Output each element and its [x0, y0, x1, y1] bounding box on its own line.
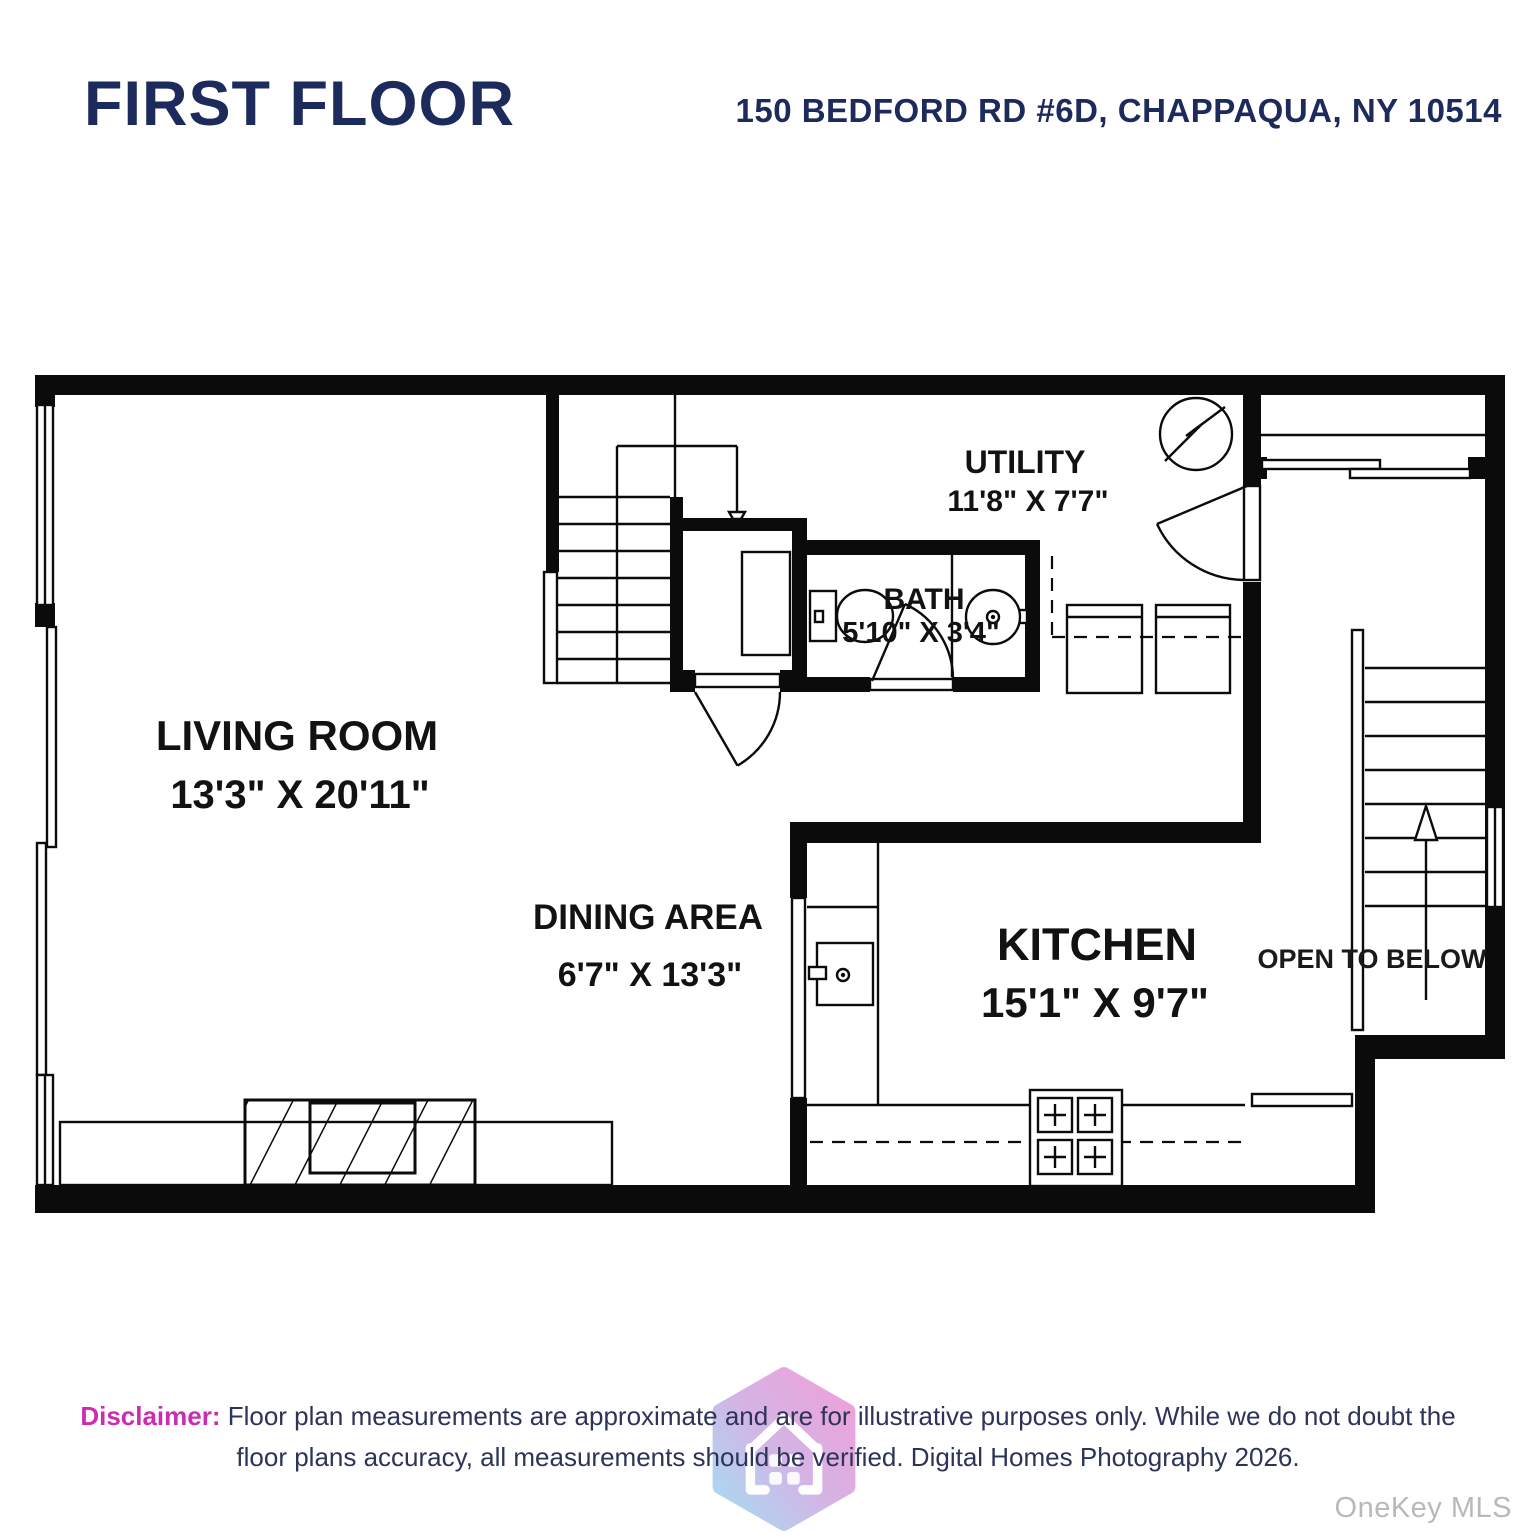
main-staircase: [544, 395, 745, 683]
utility-door-threshold: [1244, 486, 1260, 580]
disclaimer-line-2: floor plans accuracy, all measurements s…: [0, 1437, 1536, 1478]
closet-door-swing-icon: [695, 692, 780, 766]
utility-label: UTILITY: [965, 444, 1086, 480]
hall-closet: [695, 552, 790, 766]
disclaimer-label: Disclaimer:: [80, 1401, 220, 1431]
utility-dims: 11'8" X 7'7": [947, 485, 1108, 518]
kitchen-label: KITCHEN: [997, 919, 1197, 970]
stair-landing-tick: [729, 512, 745, 519]
stairwell-window: [1487, 807, 1503, 907]
living-room-dims: 13'3" X 20'11": [170, 773, 429, 817]
kitchen-sink-icon: [809, 943, 873, 1005]
mls-brand-watermark: OneKey MLS: [1335, 1492, 1512, 1525]
utility-room: [1052, 398, 1260, 693]
property-address: 150 BEDFORD RD #6D, CHAPPAQUA, NY 10514: [735, 92, 1502, 130]
dining-area-dims: 6'7" X 13'3": [558, 956, 743, 994]
living-room-furniture: [60, 1100, 612, 1185]
open-to-below-label: OPEN TO BELOW: [1257, 944, 1487, 974]
page-title: FIRST FLOOR: [84, 68, 515, 140]
disclaimer-line-1: Disclaimer: Floor plan measurements are …: [0, 1396, 1536, 1437]
floor-plan-drawing: LIVING ROOM 13'3" X 20'11" DINING AREA 6…: [0, 0, 1536, 1536]
fireplace-icon: [245, 1100, 475, 1185]
disclaimer: Disclaimer: Floor plan measurements are …: [0, 1396, 1536, 1478]
bath-label: BATH: [883, 583, 964, 616]
living-room-label: LIVING ROOM: [156, 712, 438, 759]
closet-door-threshold: [695, 674, 780, 687]
floor-plan-page: { "header": { "title": "FIRST FLOOR", "a…: [0, 0, 1536, 1536]
stair-railing: [544, 572, 557, 683]
stove-icon: [1030, 1090, 1122, 1186]
water-heater-icon: [1160, 398, 1232, 470]
living-room-windows: [37, 405, 56, 1185]
dining-area-label: DINING AREA: [533, 898, 763, 937]
kitchen-passthrough-opening: [792, 898, 805, 1098]
bath-door-threshold: [870, 679, 953, 690]
sliding-door-icon: [1258, 435, 1487, 478]
stair-direction-arrow: [1415, 806, 1437, 840]
room-labels: LIVING ROOM 13'3" X 20'11" DINING AREA 6…: [156, 444, 1487, 1026]
washer-dryer-icons: [1067, 605, 1230, 693]
bath-dims: 5'10" X 3'4": [842, 617, 999, 649]
utility-door-swing-icon: [1157, 486, 1247, 580]
kitchen-dims: 15'1" X 9'7": [981, 979, 1209, 1026]
